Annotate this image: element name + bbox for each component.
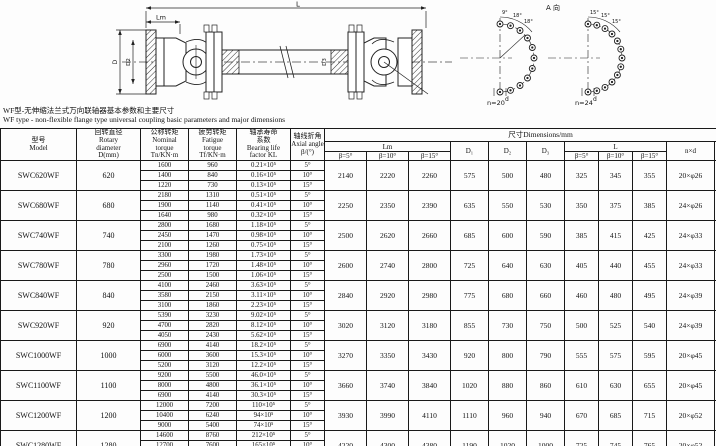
table-row: SWC1000WF10006900414018.2×10⁵5°327033503… <box>1 341 716 351</box>
d-cell: 790 <box>527 341 565 371</box>
table-row: SWC1100WF11009200550046.0×10⁵5°366037403… <box>1 371 716 381</box>
nxd-cell: 24×φ33 <box>667 251 715 281</box>
fatigue-torque-cell: 1860 <box>189 301 237 311</box>
nominal-torque-cell: 10400 <box>141 411 189 421</box>
bearing-life-cell: 0.51×10⁵ <box>237 191 291 201</box>
diameter-cell: 620 <box>77 161 141 191</box>
bolt-hole-center <box>596 25 597 26</box>
bearing-life-cell: 15.3×10⁵ <box>237 351 291 361</box>
l-cell: 525 <box>599 311 633 341</box>
fatigue-torque-cell: 7600 <box>189 441 237 446</box>
fatigue-torque-cell: 1470 <box>189 231 237 241</box>
d-cell: 730 <box>489 311 527 341</box>
col-header-l-beta15: β=15° <box>633 152 667 161</box>
fatigue-torque-cell: 4800 <box>189 381 237 391</box>
table-row: SWC1280WF1280146008760212×10⁵5°422043004… <box>1 431 716 441</box>
axial-angle-cell: 10° <box>291 201 325 211</box>
bolt-hole-center <box>519 85 520 86</box>
l-cell: 425 <box>633 221 667 251</box>
table-row: SWC620WF62016009600.21×10⁵5°214022202260… <box>1 161 716 171</box>
axial-angle-cell: 5° <box>291 401 325 411</box>
diameter-cell: 680 <box>77 191 141 221</box>
axial-angle-cell: 15° <box>291 301 325 311</box>
nominal-torque-cell: 9200 <box>141 371 189 381</box>
bearing-life-cell: 2.23×10⁵ <box>237 301 291 311</box>
table-row: SWC1200WF1200120007200110×10⁵5°393039904… <box>1 401 716 411</box>
col-header-l-beta5: β=5° <box>565 152 599 161</box>
diameter-cell: 1100 <box>77 371 141 401</box>
caption-chinese: WF型-无伸缩法兰式万向联轴器基本参数和主要尺寸 <box>3 106 716 115</box>
fatigue-torque-cell: 840 <box>189 171 237 181</box>
diameter-cell: 740 <box>77 221 141 251</box>
d-cell: 775 <box>451 281 489 311</box>
model-cell: SWC1200WF <box>1 401 77 431</box>
nxd-cell: 24×φ39 <box>667 281 715 311</box>
right-yoke <box>364 30 422 94</box>
bolt-hole-center <box>611 81 612 82</box>
fatigue-torque-cell: 1500 <box>189 271 237 281</box>
col-header-model: 型号 Model <box>1 129 77 161</box>
lm-cell: 2220 <box>367 161 409 191</box>
fatigue-torque-cell: 1980 <box>189 251 237 261</box>
n20-angle-2: 18° <box>513 13 522 19</box>
nominal-torque-cell: 6000 <box>141 351 189 361</box>
d-cell: 660 <box>527 281 565 311</box>
axial-angle-cell: 10° <box>291 441 325 446</box>
lm-cell: 2920 <box>367 281 409 311</box>
bearing-life-cell: 0.13×10⁵ <box>237 181 291 191</box>
l-cell: 440 <box>599 251 633 281</box>
d-cell: 600 <box>489 221 527 251</box>
col-header-lm-beta10: β=10° <box>367 152 409 161</box>
fatigue-torque-cell: 1310 <box>189 191 237 201</box>
d-cell: 550 <box>489 191 527 221</box>
n20-d-label: d <box>505 96 509 103</box>
nxd-cell: 20×φ52 <box>667 431 715 446</box>
fatigue-torque-cell: 1260 <box>189 241 237 251</box>
d-cell: 530 <box>527 191 565 221</box>
l-cell: 350 <box>565 191 599 221</box>
l-cell: 685 <box>599 401 633 431</box>
bearing-life-cell: 165×10⁵ <box>237 441 291 446</box>
nxd-cell: 24×φ26 <box>667 191 715 221</box>
bearing-life-cell: 0.98×10⁵ <box>237 231 291 241</box>
bolt-hole-center <box>620 49 621 50</box>
lm-cell: 3740 <box>367 371 409 401</box>
bolt-circle-n20 <box>460 17 537 98</box>
l-cell: 745 <box>599 431 633 446</box>
model-cell: SWC740WF <box>1 221 77 251</box>
col-header-d3: D₃ <box>527 142 565 161</box>
bearing-life-cell: 110×10⁵ <box>237 401 291 411</box>
axial-angle-cell: 15° <box>291 361 325 371</box>
dimension-L <box>146 6 426 28</box>
bearing-life-cell: 46.0×10⁵ <box>237 371 291 381</box>
d-cell: 960 <box>489 401 527 431</box>
bearing-life-cell: 5.62×10⁵ <box>237 331 291 341</box>
bolt-hole-center <box>499 91 500 92</box>
bolt-hole-center <box>587 91 588 92</box>
lm-cell: 3180 <box>409 311 451 341</box>
caption-english: WF type - non-flexible flange type unive… <box>3 115 716 124</box>
bolt-hole-center <box>519 30 520 31</box>
l-cell: 630 <box>599 371 633 401</box>
d-cell: 575 <box>451 161 489 191</box>
bolt-hole-center <box>527 37 528 38</box>
lm-cell: 4110 <box>409 401 451 431</box>
col-header-fatigue-torque: 疲劳转矩 Fatigue torque Tf/KN·m <box>189 129 237 161</box>
bearing-life-cell: 3.63×10⁵ <box>237 281 291 291</box>
nominal-torque-cell: 2100 <box>141 241 189 251</box>
bolt-hole-center <box>510 25 511 26</box>
axial-angle-cell: 10° <box>291 321 325 331</box>
d-cell: 1110 <box>451 401 489 431</box>
lm-cell: 3270 <box>325 341 367 371</box>
col-header-axial-angle: 轴线折角 Axial angle β/(°) <box>291 129 325 161</box>
fatigue-torque-cell: 5500 <box>189 371 237 381</box>
bearing-life-cell: 0.41×10⁵ <box>237 201 291 211</box>
nominal-torque-cell: 2500 <box>141 271 189 281</box>
left-bolt-flange <box>204 25 222 99</box>
bearing-life-cell: 18.2×10⁵ <box>237 341 291 351</box>
d-cell: 800 <box>489 341 527 371</box>
bolt-hole-center <box>617 74 618 75</box>
d-cell: 860 <box>527 371 565 401</box>
axial-angle-cell: 5° <box>291 311 325 321</box>
l-cell: 655 <box>633 371 667 401</box>
lm-cell: 4220 <box>325 431 367 446</box>
lm-cell: 2140 <box>325 161 367 191</box>
d-cell: 1020 <box>451 371 489 401</box>
nominal-torque-cell: 6900 <box>141 391 189 401</box>
col-header-rotary-diameter: 回转直径 Rotary diameter D(mm) <box>77 129 141 161</box>
bolt-hole-center <box>587 23 588 24</box>
col-header-d1: D₁ <box>451 142 489 161</box>
nominal-torque-cell: 3300 <box>141 251 189 261</box>
table-row: SWC680WF680218013100.51×10⁵5°22502350239… <box>1 191 716 201</box>
lm-cell: 3930 <box>325 401 367 431</box>
col-header-l-beta10: β=10° <box>599 152 633 161</box>
fatigue-torque-cell: 1680 <box>189 221 237 231</box>
diameter-cell: 780 <box>77 251 141 281</box>
nominal-torque-cell: 6900 <box>141 341 189 351</box>
lm-cell: 2660 <box>409 221 451 251</box>
d-cell: 590 <box>527 221 565 251</box>
lm-cell: 4300 <box>367 431 409 446</box>
bearing-life-cell: 0.32×10⁵ <box>237 211 291 221</box>
l-cell: 595 <box>633 341 667 371</box>
n20-count-label: n=20 <box>487 99 505 106</box>
right-bolt-flange <box>348 25 364 99</box>
bearing-life-cell: 1.06×10⁵ <box>237 271 291 281</box>
l-cell: 375 <box>599 191 633 221</box>
fatigue-torque-cell: 5400 <box>189 421 237 431</box>
table-row: SWC740WF740280016801.18×10⁵5°25002620266… <box>1 221 716 231</box>
lm-cell: 2390 <box>409 191 451 221</box>
axial-angle-cell: 15° <box>291 241 325 251</box>
col-header-lm-beta5: β=5° <box>325 152 367 161</box>
technical-drawing: L Lm D D2 <box>0 0 716 106</box>
fatigue-torque-cell: 980 <box>189 211 237 221</box>
d-cell: 920 <box>451 341 489 371</box>
fatigue-torque-cell: 7200 <box>189 401 237 411</box>
bolt-hole-center <box>510 90 511 91</box>
l-cell: 455 <box>633 251 667 281</box>
bearing-life-cell: 0.75×10⁵ <box>237 241 291 251</box>
col-header-d2: D₂ <box>489 142 527 161</box>
fatigue-torque-cell: 730 <box>189 181 237 191</box>
nominal-torque-cell: 4050 <box>141 331 189 341</box>
bolt-hole-center <box>617 40 618 41</box>
spec-table-header: 型号 Model 回转直径 Rotary diameter D(mm) 公称转矩… <box>1 129 716 161</box>
model-cell: SWC680WF <box>1 191 77 221</box>
d-cell: 855 <box>451 311 489 341</box>
table-row: SWC780WF780330019801.73×10⁵5°26002740280… <box>1 251 716 261</box>
axial-angle-cell: 10° <box>291 291 325 301</box>
d-cell: 680 <box>489 281 527 311</box>
dim-Lm-label: Lm <box>156 14 166 22</box>
fatigue-torque-cell: 4140 <box>189 341 237 351</box>
axial-angle-cell: 10° <box>291 381 325 391</box>
axial-angle-cell: 5° <box>291 251 325 261</box>
fatigue-torque-cell: 4140 <box>189 391 237 401</box>
axial-angle-cell: 5° <box>291 281 325 291</box>
bearing-life-cell: 0.21×10⁵ <box>237 161 291 171</box>
l-cell: 325 <box>565 161 599 191</box>
axial-angle-cell: 10° <box>291 411 325 421</box>
fatigue-torque-cell: 2820 <box>189 321 237 331</box>
nominal-torque-cell: 9000 <box>141 421 189 431</box>
nominal-torque-cell: 5200 <box>141 361 189 371</box>
nominal-torque-cell: 12700 <box>141 441 189 446</box>
axial-angle-cell: 15° <box>291 271 325 281</box>
d-cell: 685 <box>451 221 489 251</box>
l-cell: 555 <box>565 341 599 371</box>
lm-cell: 2500 <box>325 221 367 251</box>
bearing-life-cell: 212×10⁵ <box>237 431 291 441</box>
n24-count-label: n=24 <box>575 99 593 106</box>
bearing-life-cell: 12.2×10⁵ <box>237 361 291 371</box>
view-A-label: A 向 <box>546 3 560 12</box>
nxd-cell: 20×φ26 <box>667 161 715 191</box>
nxd-cell: 20×φ45 <box>667 371 715 401</box>
fatigue-torque-cell: 1720 <box>189 261 237 271</box>
d-cell: 635 <box>451 191 489 221</box>
bolt-hole-center <box>611 33 612 34</box>
d-cell: 630 <box>527 251 565 281</box>
axial-angle-cell: 5° <box>291 191 325 201</box>
diameter-cell: 840 <box>77 281 141 311</box>
left-flange <box>146 30 156 94</box>
nominal-torque-cell: 12000 <box>141 401 189 411</box>
n24-angle-1: 15° <box>590 10 599 16</box>
l-cell: 715 <box>633 401 667 431</box>
lm-cell: 3120 <box>367 311 409 341</box>
fatigue-torque-cell: 3120 <box>189 361 237 371</box>
bearing-life-cell: 9.02×10⁵ <box>237 311 291 321</box>
n24-angle-3: 15° <box>612 19 621 25</box>
nominal-torque-cell: 2800 <box>141 221 189 231</box>
d-cell: 1000 <box>527 431 565 446</box>
lm-cell: 3350 <box>367 341 409 371</box>
bolt-hole-center <box>604 28 605 29</box>
d-cell: 750 <box>527 311 565 341</box>
nominal-torque-cell: 2960 <box>141 261 189 271</box>
bearing-life-cell: 1.73×10⁵ <box>237 251 291 261</box>
l-cell: 610 <box>565 371 599 401</box>
l-cell: 460 <box>565 281 599 311</box>
dim-L-label: L <box>296 1 300 9</box>
nxd-cell: 24×φ39 <box>667 311 715 341</box>
l-cell: 540 <box>633 311 667 341</box>
nominal-torque-cell: 4100 <box>141 281 189 291</box>
model-cell: SWC1280WF <box>1 431 77 446</box>
lm-cell: 3990 <box>367 401 409 431</box>
lm-cell: 2840 <box>325 281 367 311</box>
l-cell: 480 <box>599 281 633 311</box>
nominal-torque-cell: 2450 <box>141 231 189 241</box>
d-cell: 1190 <box>451 431 489 446</box>
bolt-hole-center <box>533 57 534 58</box>
diameter-cell: 1280 <box>77 431 141 446</box>
bearing-life-cell: 3.11×10⁵ <box>237 291 291 301</box>
n20-angle-1: 9° <box>502 10 508 16</box>
nominal-torque-cell: 1400 <box>141 171 189 181</box>
bearing-life-cell: 74×10⁵ <box>237 421 291 431</box>
nominal-torque-cell: 1900 <box>141 201 189 211</box>
fatigue-torque-cell: 6240 <box>189 411 237 421</box>
l-cell: 345 <box>599 161 633 191</box>
lm-cell: 3020 <box>325 311 367 341</box>
model-cell: SWC840WF <box>1 281 77 311</box>
d-cell: 725 <box>451 251 489 281</box>
axial-angle-cell: 5° <box>291 431 325 441</box>
nxd-cell: 24×φ33 <box>667 221 715 251</box>
l-cell: 500 <box>565 311 599 341</box>
bearing-life-cell: 94×10⁵ <box>237 411 291 421</box>
lm-cell: 2250 <box>325 191 367 221</box>
model-cell: SWC920WF <box>1 311 77 341</box>
lm-cell: 2800 <box>409 251 451 281</box>
bolt-hole-center <box>532 47 533 48</box>
axial-angle-cell: 10° <box>291 171 325 181</box>
lm-cell: 2740 <box>367 251 409 281</box>
col-header-nxd: n×d <box>667 142 715 161</box>
d-cell: 880 <box>489 371 527 401</box>
col-header-lm: Lm <box>325 142 451 152</box>
l-cell: 575 <box>599 341 633 371</box>
fatigue-torque-cell: 960 <box>189 161 237 171</box>
l-cell: 355 <box>633 161 667 191</box>
lm-cell: 4380 <box>409 431 451 446</box>
nominal-torque-cell: 3100 <box>141 301 189 311</box>
model-cell: SWC780WF <box>1 251 77 281</box>
axial-angle-cell: 10° <box>291 231 325 241</box>
d-cell: 500 <box>489 161 527 191</box>
table-row: SWC920WF920539032309.02×10⁵5°30203120318… <box>1 311 716 321</box>
nominal-torque-cell: 14600 <box>141 431 189 441</box>
d-cell: 640 <box>489 251 527 281</box>
nominal-torque-cell: 2180 <box>141 191 189 201</box>
fatigue-torque-cell: 2430 <box>189 331 237 341</box>
l-cell: 385 <box>565 221 599 251</box>
fatigue-torque-cell: 2460 <box>189 281 237 291</box>
diameter-cell: 1000 <box>77 341 141 371</box>
axial-angle-cell: 5° <box>291 371 325 381</box>
l-cell: 670 <box>565 401 599 431</box>
bolt-hole-center <box>532 68 533 69</box>
dim-D3-label: D3 <box>322 58 328 66</box>
bearing-life-cell: 0.16×10⁵ <box>237 171 291 181</box>
axial-angle-cell: 5° <box>291 221 325 231</box>
nominal-torque-cell: 1220 <box>141 181 189 191</box>
l-cell: 415 <box>599 221 633 251</box>
bolt-hole-center <box>620 66 621 67</box>
fatigue-torque-cell: 1140 <box>189 201 237 211</box>
fatigue-torque-cell: 3230 <box>189 311 237 321</box>
bolt-hole-center <box>527 77 528 78</box>
fatigue-torque-cell: 3600 <box>189 351 237 361</box>
axial-angle-cell: 15° <box>291 421 325 431</box>
nominal-torque-cell: 1640 <box>141 211 189 221</box>
bearing-life-cell: 1.18×10⁵ <box>237 221 291 231</box>
nominal-torque-cell: 4700 <box>141 321 189 331</box>
lm-cell: 2620 <box>367 221 409 251</box>
lm-cell: 2980 <box>409 281 451 311</box>
spec-table: 型号 Model 回转直径 Rotary diameter D(mm) 公称转矩… <box>0 128 716 446</box>
axial-angle-cell: 15° <box>291 181 325 191</box>
nxd-cell: 20×φ45 <box>667 341 715 371</box>
fatigue-torque-cell: 8760 <box>189 431 237 441</box>
dim-D-label: D <box>112 59 119 64</box>
n24-angle-2: 15° <box>601 13 610 19</box>
nominal-torque-cell: 1600 <box>141 161 189 171</box>
l-cell: 495 <box>633 281 667 311</box>
bolt-circle-n24 <box>548 17 625 98</box>
fatigue-torque-cell: 2150 <box>189 291 237 301</box>
l-cell: 385 <box>633 191 667 221</box>
d-cell: 480 <box>527 161 565 191</box>
col-header-lm-beta15: β=15° <box>409 152 451 161</box>
lm-cell: 2350 <box>367 191 409 221</box>
n24-d-label: d <box>593 96 597 103</box>
axial-angle-cell: 15° <box>291 331 325 341</box>
axial-angle-cell: 5° <box>291 161 325 171</box>
lm-cell: 3840 <box>409 371 451 401</box>
col-header-dimensions: 尺寸Dimensions/mm <box>325 129 716 142</box>
model-cell: SWC1100WF <box>1 371 77 401</box>
dim-D2-label: D2 <box>126 58 132 66</box>
left-flange-hub <box>156 38 164 86</box>
nominal-torque-cell: 8000 <box>141 381 189 391</box>
bearing-life-cell: 30.3×10⁵ <box>237 391 291 401</box>
lm-cell: 2260 <box>409 161 451 191</box>
nominal-torque-cell: 3580 <box>141 291 189 301</box>
lm-cell: 3660 <box>325 371 367 401</box>
l-cell: 765 <box>633 431 667 446</box>
n20-angle-3: 18° <box>524 19 533 25</box>
d-cell: 940 <box>527 401 565 431</box>
spec-table-body: SWC620WF62016009600.21×10⁵5°214022202260… <box>1 161 716 446</box>
bearing-life-cell: 36.1×10⁵ <box>237 381 291 391</box>
axial-angle-cell: 5° <box>291 341 325 351</box>
axial-angle-cell: 15° <box>291 211 325 221</box>
axial-angle-cell: 10° <box>291 261 325 271</box>
l-cell: 405 <box>565 251 599 281</box>
catalog-page: L Lm D D2 <box>0 0 716 446</box>
model-cell: SWC620WF <box>1 161 77 191</box>
diameter-cell: 920 <box>77 311 141 341</box>
